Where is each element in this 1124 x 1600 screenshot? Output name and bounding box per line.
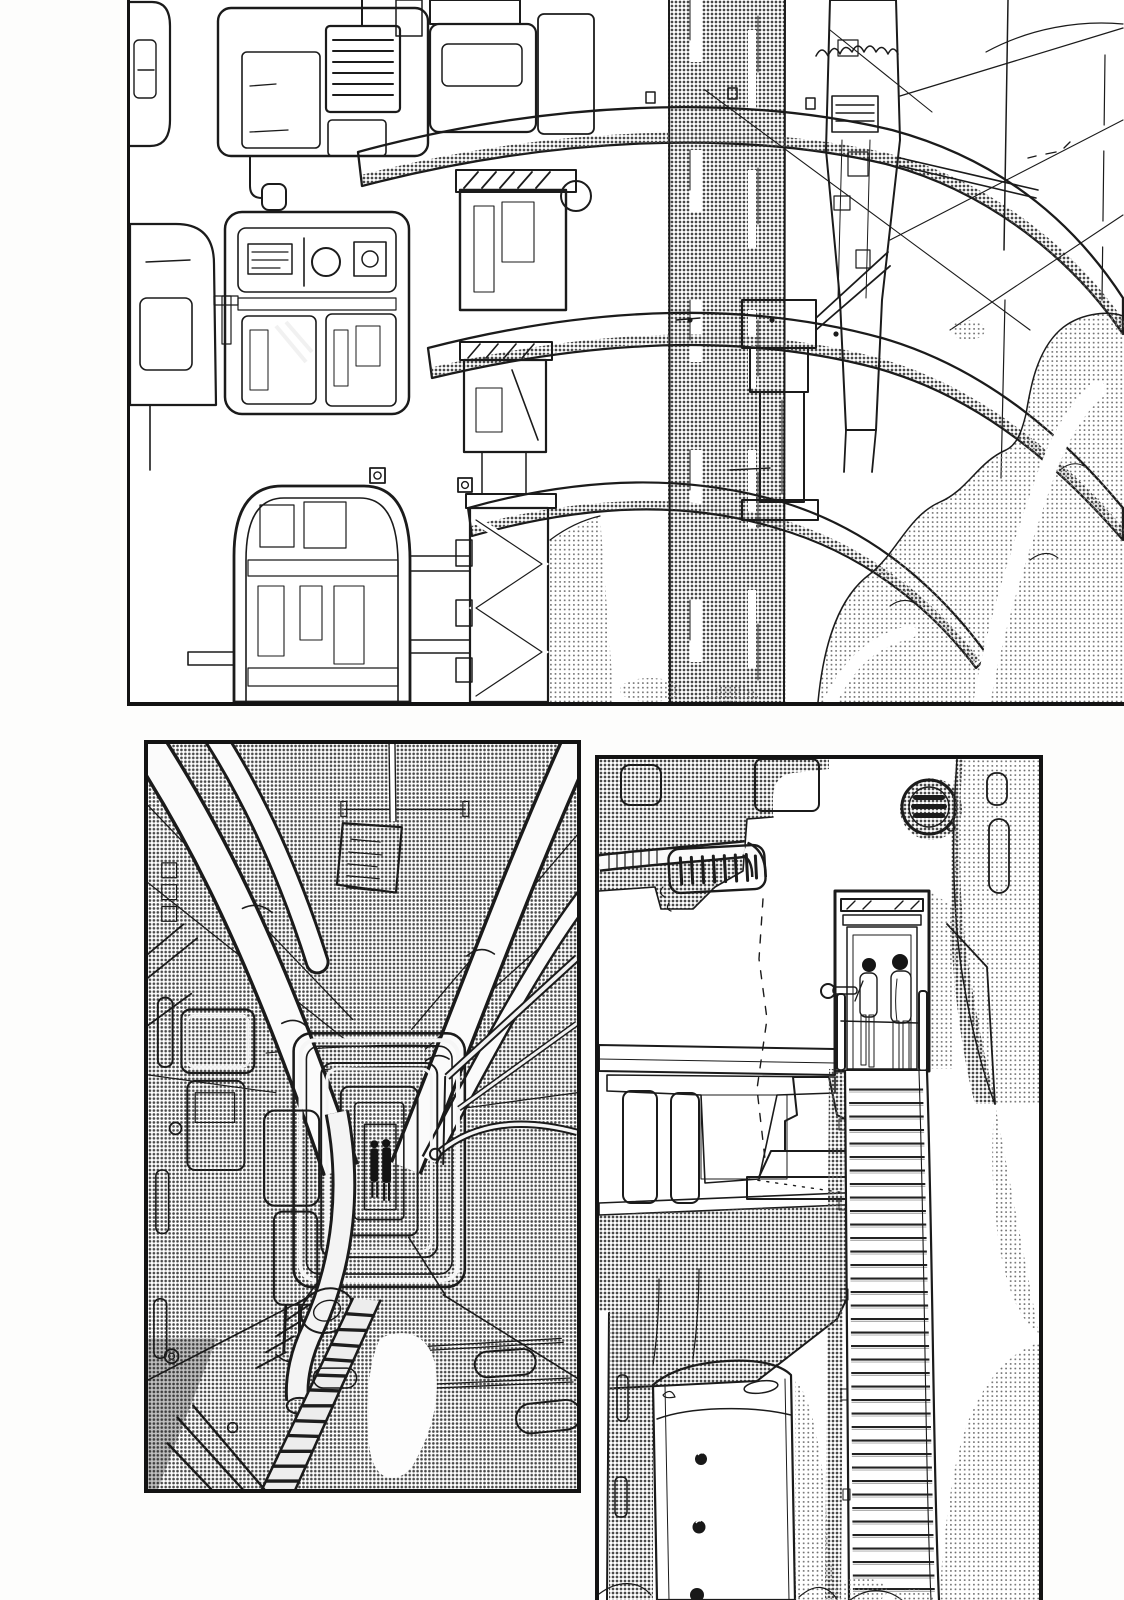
panel-top-structure bbox=[127, 0, 1124, 706]
panel-1-artwork bbox=[130, 0, 1124, 702]
panel-staircase-exterior bbox=[595, 755, 1043, 1600]
panel-3-artwork bbox=[599, 759, 1039, 1600]
central-column bbox=[668, 0, 786, 702]
panel-corridor-interior bbox=[144, 740, 581, 1493]
manga-page bbox=[0, 0, 1124, 1600]
panel-2-artwork bbox=[148, 744, 577, 1489]
